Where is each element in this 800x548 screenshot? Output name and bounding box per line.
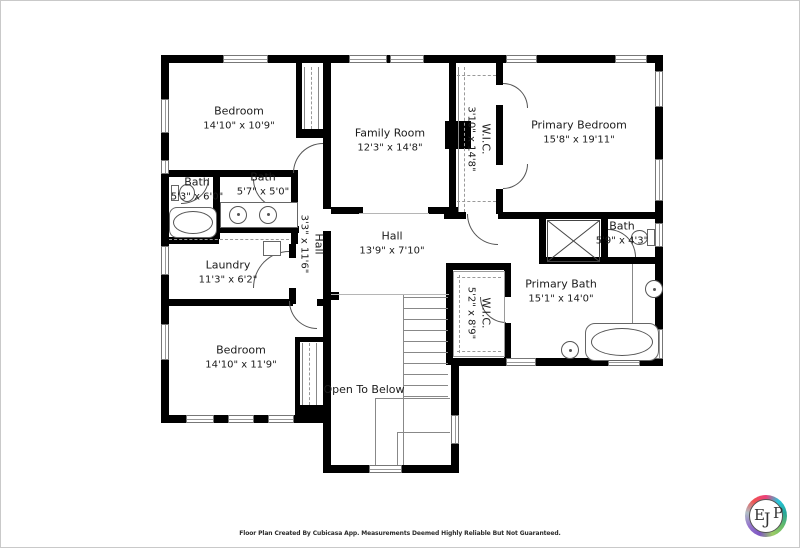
window [161, 99, 169, 133]
room-label-open-to-below: Open To Below [323, 383, 404, 397]
stair-tread [404, 330, 448, 331]
door-swing [467, 214, 498, 245]
stair-tread [404, 341, 448, 342]
stair-tread [404, 352, 448, 353]
stair-tread [404, 385, 448, 386]
window [369, 465, 402, 473]
closet-rail [311, 67, 312, 129]
wall [496, 63, 503, 85]
room-name: Primary Bedroom [531, 119, 627, 132]
closet-rail [457, 351, 501, 352]
window [349, 55, 387, 63]
wall [498, 212, 663, 219]
floor-plan-page: Bedroom 14'10" x 10'9" Family Room 12'3"… [0, 0, 800, 548]
stair-landing [397, 432, 450, 433]
window [655, 159, 663, 201]
shower-symbol [547, 220, 600, 262]
closet-rail [459, 275, 460, 353]
railing-line [331, 294, 449, 295]
window [186, 415, 214, 423]
sink-drain [569, 349, 572, 352]
room-name: Primary Bath [525, 278, 597, 291]
wall [161, 299, 293, 306]
room-label-family-room: Family Room 12'3" x 14'8" [355, 127, 425, 156]
room-label-hall-1: Hall 3'3" x 11'6" [297, 215, 326, 274]
stair-landing [397, 432, 398, 465]
closet-rail [457, 75, 496, 76]
room-label-bath-3: Bath 5'9" x 4'3" [596, 220, 648, 249]
room-label-primary-bedroom: Primary Bedroom 15'8" x 19'11" [531, 119, 627, 148]
wall [444, 212, 466, 219]
closet-track [304, 67, 305, 129]
closet-track [318, 67, 319, 129]
window [161, 160, 169, 174]
room-name: Hall [312, 233, 325, 254]
room-label-primary-bath: Primary Bath 15'1" x 14'0" [525, 278, 597, 307]
laundry-counter-line [169, 239, 289, 240]
laundry-sink [263, 241, 281, 256]
room-dims: 11'3" x 6'2" [199, 275, 258, 286]
door-swing [253, 251, 289, 288]
sink-drain [653, 288, 656, 291]
floor-plan: Bedroom 14'10" x 10'9" Family Room 12'3"… [1, 1, 800, 548]
logo-letter-p: P [773, 506, 783, 521]
window [223, 55, 268, 63]
window [161, 246, 169, 275]
room-name: Bath [184, 176, 210, 189]
window [655, 223, 663, 247]
window [655, 71, 663, 107]
closet-track [458, 67, 459, 212]
room-label-bath-1: Bath 5'3" x 6'0" [171, 176, 223, 205]
door-swing [293, 143, 323, 173]
ejp-logo-inner: E J P [749, 499, 783, 533]
floor-edge-line [359, 213, 429, 214]
wall [296, 63, 302, 133]
room-name: Hall [381, 230, 402, 243]
window [451, 415, 459, 444]
closet-track [316, 343, 317, 405]
stair-tread [404, 308, 448, 309]
wall [504, 270, 511, 297]
room-dims: 15'1" x 14'0" [528, 294, 593, 305]
closet-rail [457, 201, 496, 202]
door-swing [289, 301, 317, 329]
wall [496, 189, 503, 214]
wall [496, 105, 503, 165]
wall [295, 405, 331, 423]
room-label-hall-2: Hall 13'9" x 7'10" [359, 230, 424, 259]
stair-tread [404, 363, 448, 364]
room-dims: 5'3" x 6'0" [171, 192, 223, 203]
room-dims: 12'3" x 14'8" [357, 143, 422, 154]
room-label-wic-2: W.I.C. 5'2" x 8'9" [464, 287, 493, 339]
closet-rail [457, 277, 501, 278]
sink-drain [237, 213, 240, 216]
room-label-bath-2: Bath 5'7" x 5'0" [237, 171, 289, 200]
room-dims: 5'2" x 8'9" [465, 287, 476, 339]
stair-tread [404, 297, 448, 298]
wall [323, 63, 331, 209]
room-dims: 5'7" x 5'0" [237, 187, 289, 198]
room-dims: 15'8" x 19'11" [543, 135, 615, 146]
stair-tread [404, 319, 448, 320]
room-label-wic-1: W.I.C. 3'10" x 14'8" [464, 106, 493, 171]
wall [289, 244, 296, 258]
wall [295, 339, 300, 407]
window [228, 415, 254, 423]
window [268, 415, 294, 423]
stair-landing [375, 398, 376, 465]
room-name: W.I.C. [479, 123, 492, 154]
stair-tread [404, 396, 448, 397]
wall [446, 263, 453, 365]
room-name: W.I.C. [479, 297, 492, 328]
room-name: Bath [250, 171, 276, 184]
door-swing [503, 164, 528, 189]
logo-letter-j: J [764, 511, 770, 527]
bathtub-symbol [173, 211, 213, 234]
room-name: Bath [609, 220, 635, 233]
room-label-laundry: Laundry 11'3" x 6'2" [199, 259, 258, 288]
closet-track [302, 343, 303, 405]
room-name: Bedroom [216, 344, 266, 357]
room-name: Open To Below [323, 383, 404, 396]
room-name: Laundry [206, 259, 251, 272]
wall [317, 299, 331, 306]
ejp-logo: E J P [745, 495, 787, 537]
sink-drain [267, 213, 270, 216]
stair-landing [375, 398, 450, 399]
room-dims: 13'9" x 7'10" [359, 246, 424, 257]
room-dims: 5'9" x 4'3" [596, 236, 648, 247]
disclaimer-text: Floor Plan Created By Cubicasa App. Meas… [1, 530, 799, 537]
door-swing [503, 83, 528, 108]
stair-tread [404, 374, 448, 375]
room-dims: 3'10" x 14'8" [465, 106, 476, 171]
room-label-bedroom-2: Bedroom 14'10" x 11'9" [205, 344, 277, 373]
room-dims: 14'10" x 11'9" [205, 360, 277, 371]
window [615, 55, 647, 63]
window [506, 358, 536, 366]
closet-rail [309, 343, 310, 405]
window [161, 324, 169, 360]
stair-stringer [403, 295, 404, 465]
bathtub-symbol [591, 328, 653, 356]
wall [446, 263, 511, 270]
window [506, 55, 537, 63]
room-name: Bedroom [214, 105, 264, 118]
room-dims: 3'3" x 11'6" [298, 215, 309, 274]
room-dims: 14'10" x 10'9" [203, 121, 275, 132]
room-name: Family Room [355, 127, 425, 140]
window [390, 55, 424, 63]
room-label-bedroom-1: Bedroom 14'10" x 10'9" [203, 105, 275, 134]
